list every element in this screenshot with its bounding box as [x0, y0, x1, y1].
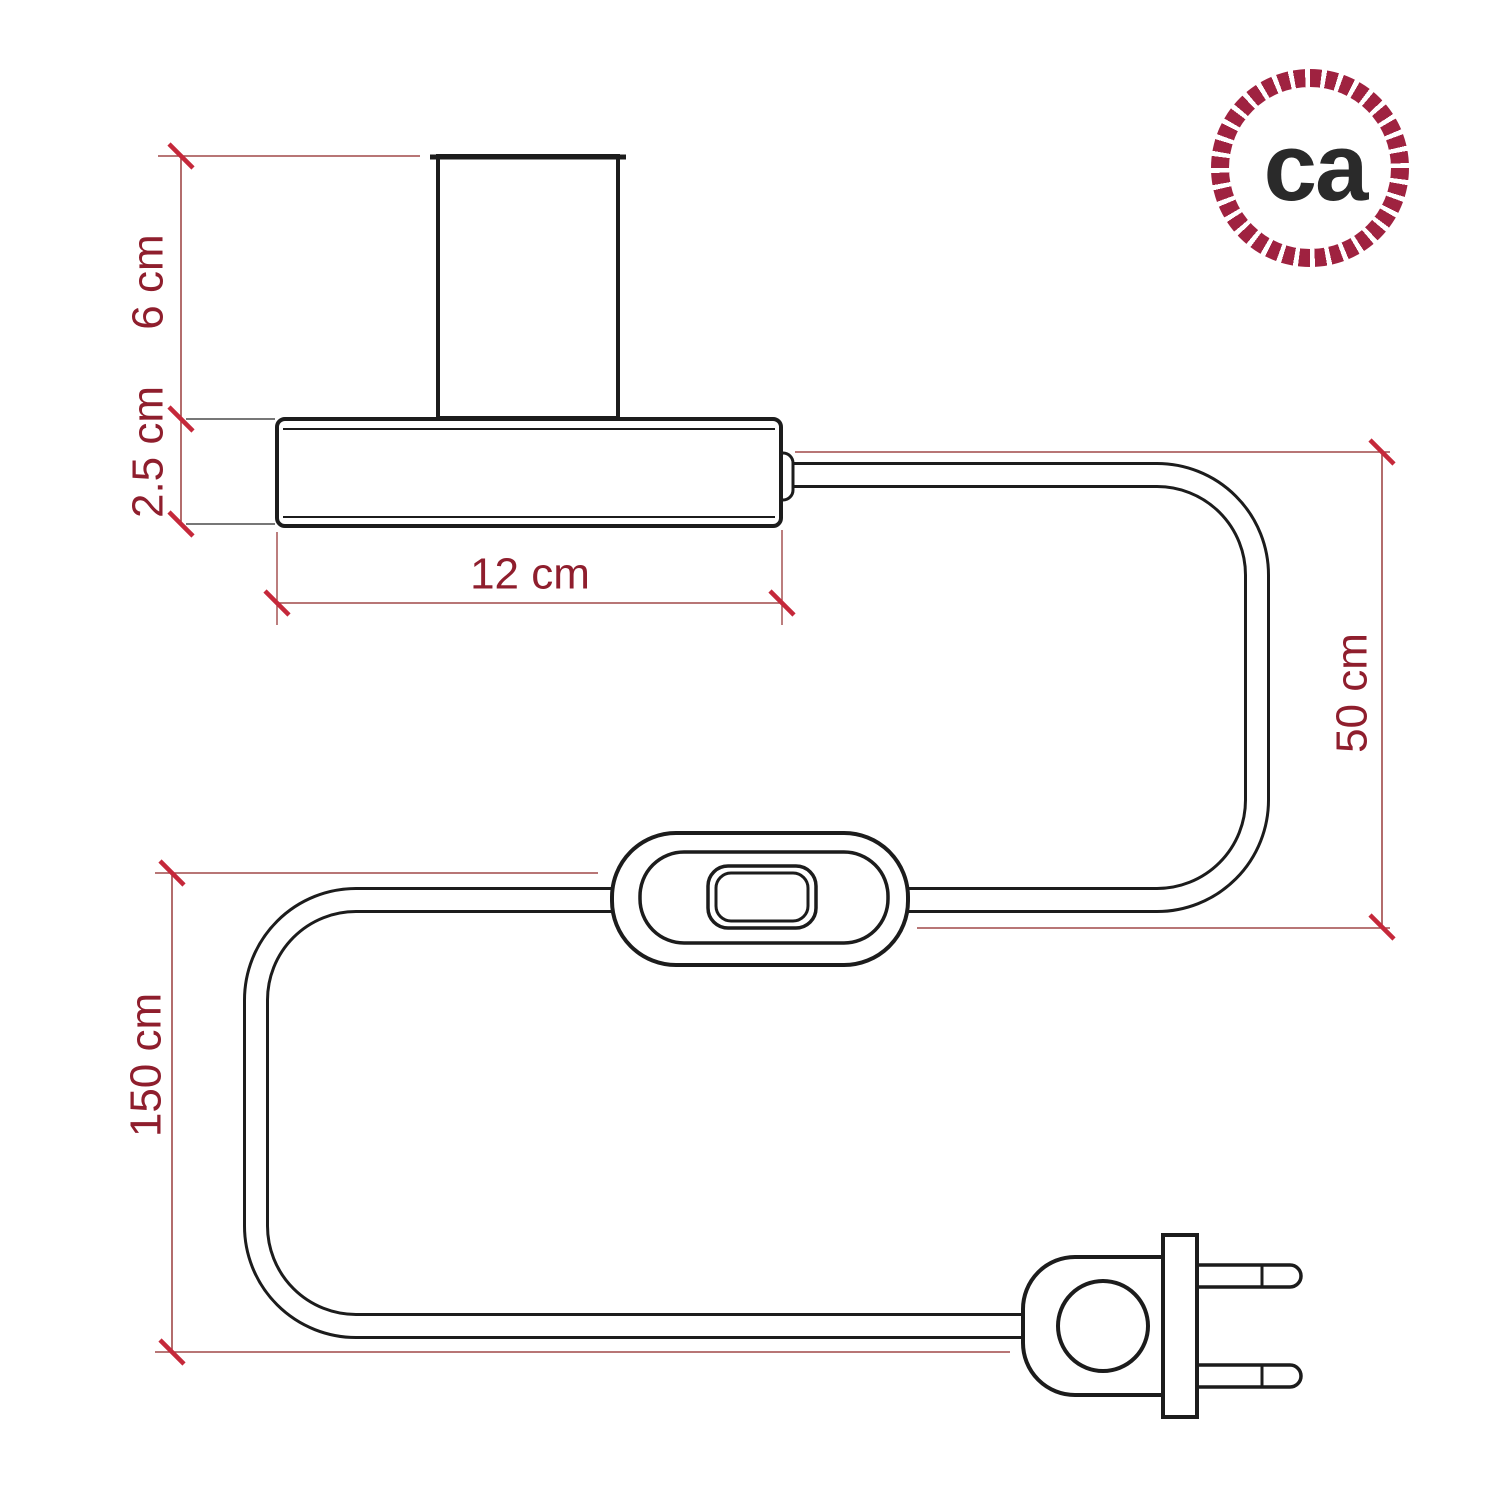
plug-prong-top — [1197, 1265, 1301, 1287]
base-body — [277, 419, 781, 526]
plug-prong-bottom — [1197, 1365, 1301, 1387]
power-cable-lower — [256, 900, 1032, 1326]
logo-text: ca — [1254, 120, 1367, 216]
dimension-label-cable-right: 50 cm — [1328, 633, 1377, 753]
dimension-drawing-canvas: 6 cm 2.5 cm 12 cm 50 cm — [0, 0, 1500, 1500]
power-plug — [1023, 1235, 1301, 1417]
plug-face-plate — [1163, 1235, 1197, 1417]
inline-switch — [612, 833, 908, 965]
socket-body — [438, 156, 618, 418]
lamp-socket — [430, 156, 626, 418]
cable-outline — [256, 900, 1032, 1326]
dim-base-width: 12 cm — [265, 530, 794, 625]
dimension-label-socket-height: 6 cm — [124, 234, 173, 329]
dimension-label-base-height: 2.5 cm — [124, 386, 173, 518]
lamp-base — [277, 419, 793, 526]
plug-cord-grip-circle — [1058, 1281, 1148, 1371]
cable-fill — [256, 900, 1032, 1326]
dimension-label-base-width: 12 cm — [470, 550, 590, 599]
brand-logo: ca — [1211, 69, 1409, 267]
dimension-label-cable-left: 150 cm — [122, 993, 171, 1137]
